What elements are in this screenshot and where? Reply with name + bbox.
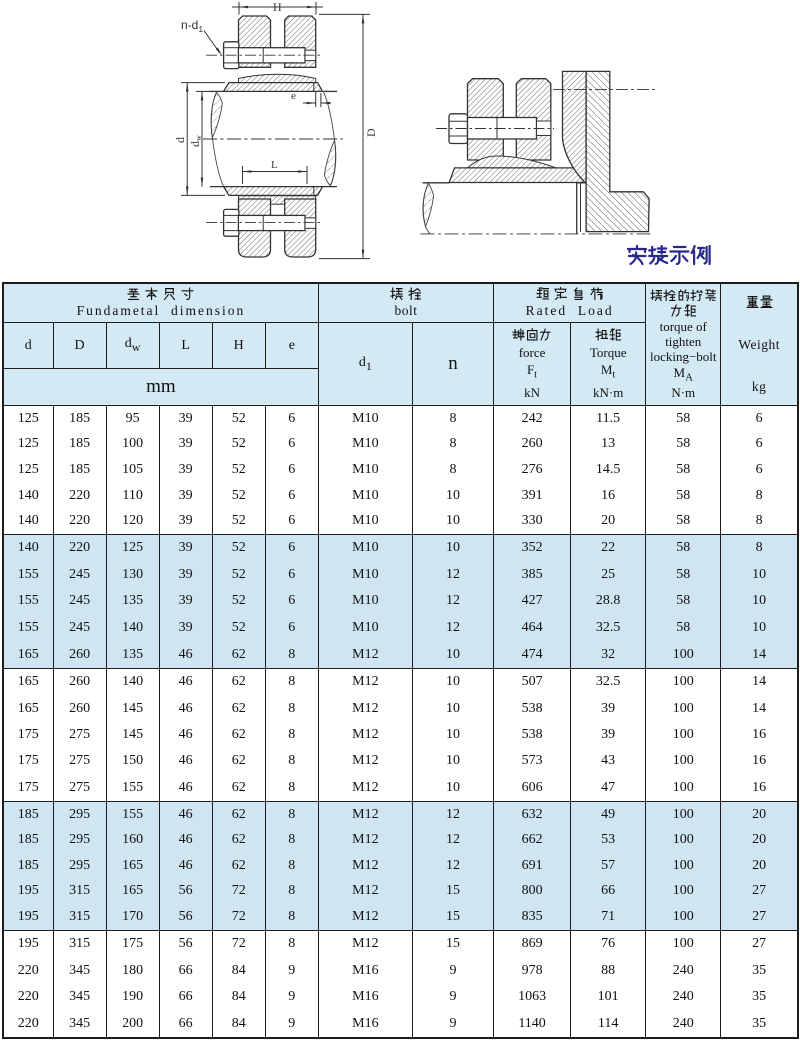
svg-text:H: H [273, 0, 282, 14]
svg-text:n-d1: n-d1 [181, 18, 203, 34]
svg-text:d: d [173, 137, 187, 143]
svg-text:e: e [291, 90, 296, 102]
svg-text:dw: dw [188, 135, 203, 147]
svg-text:L: L [271, 159, 278, 171]
svg-text:D: D [364, 128, 378, 137]
